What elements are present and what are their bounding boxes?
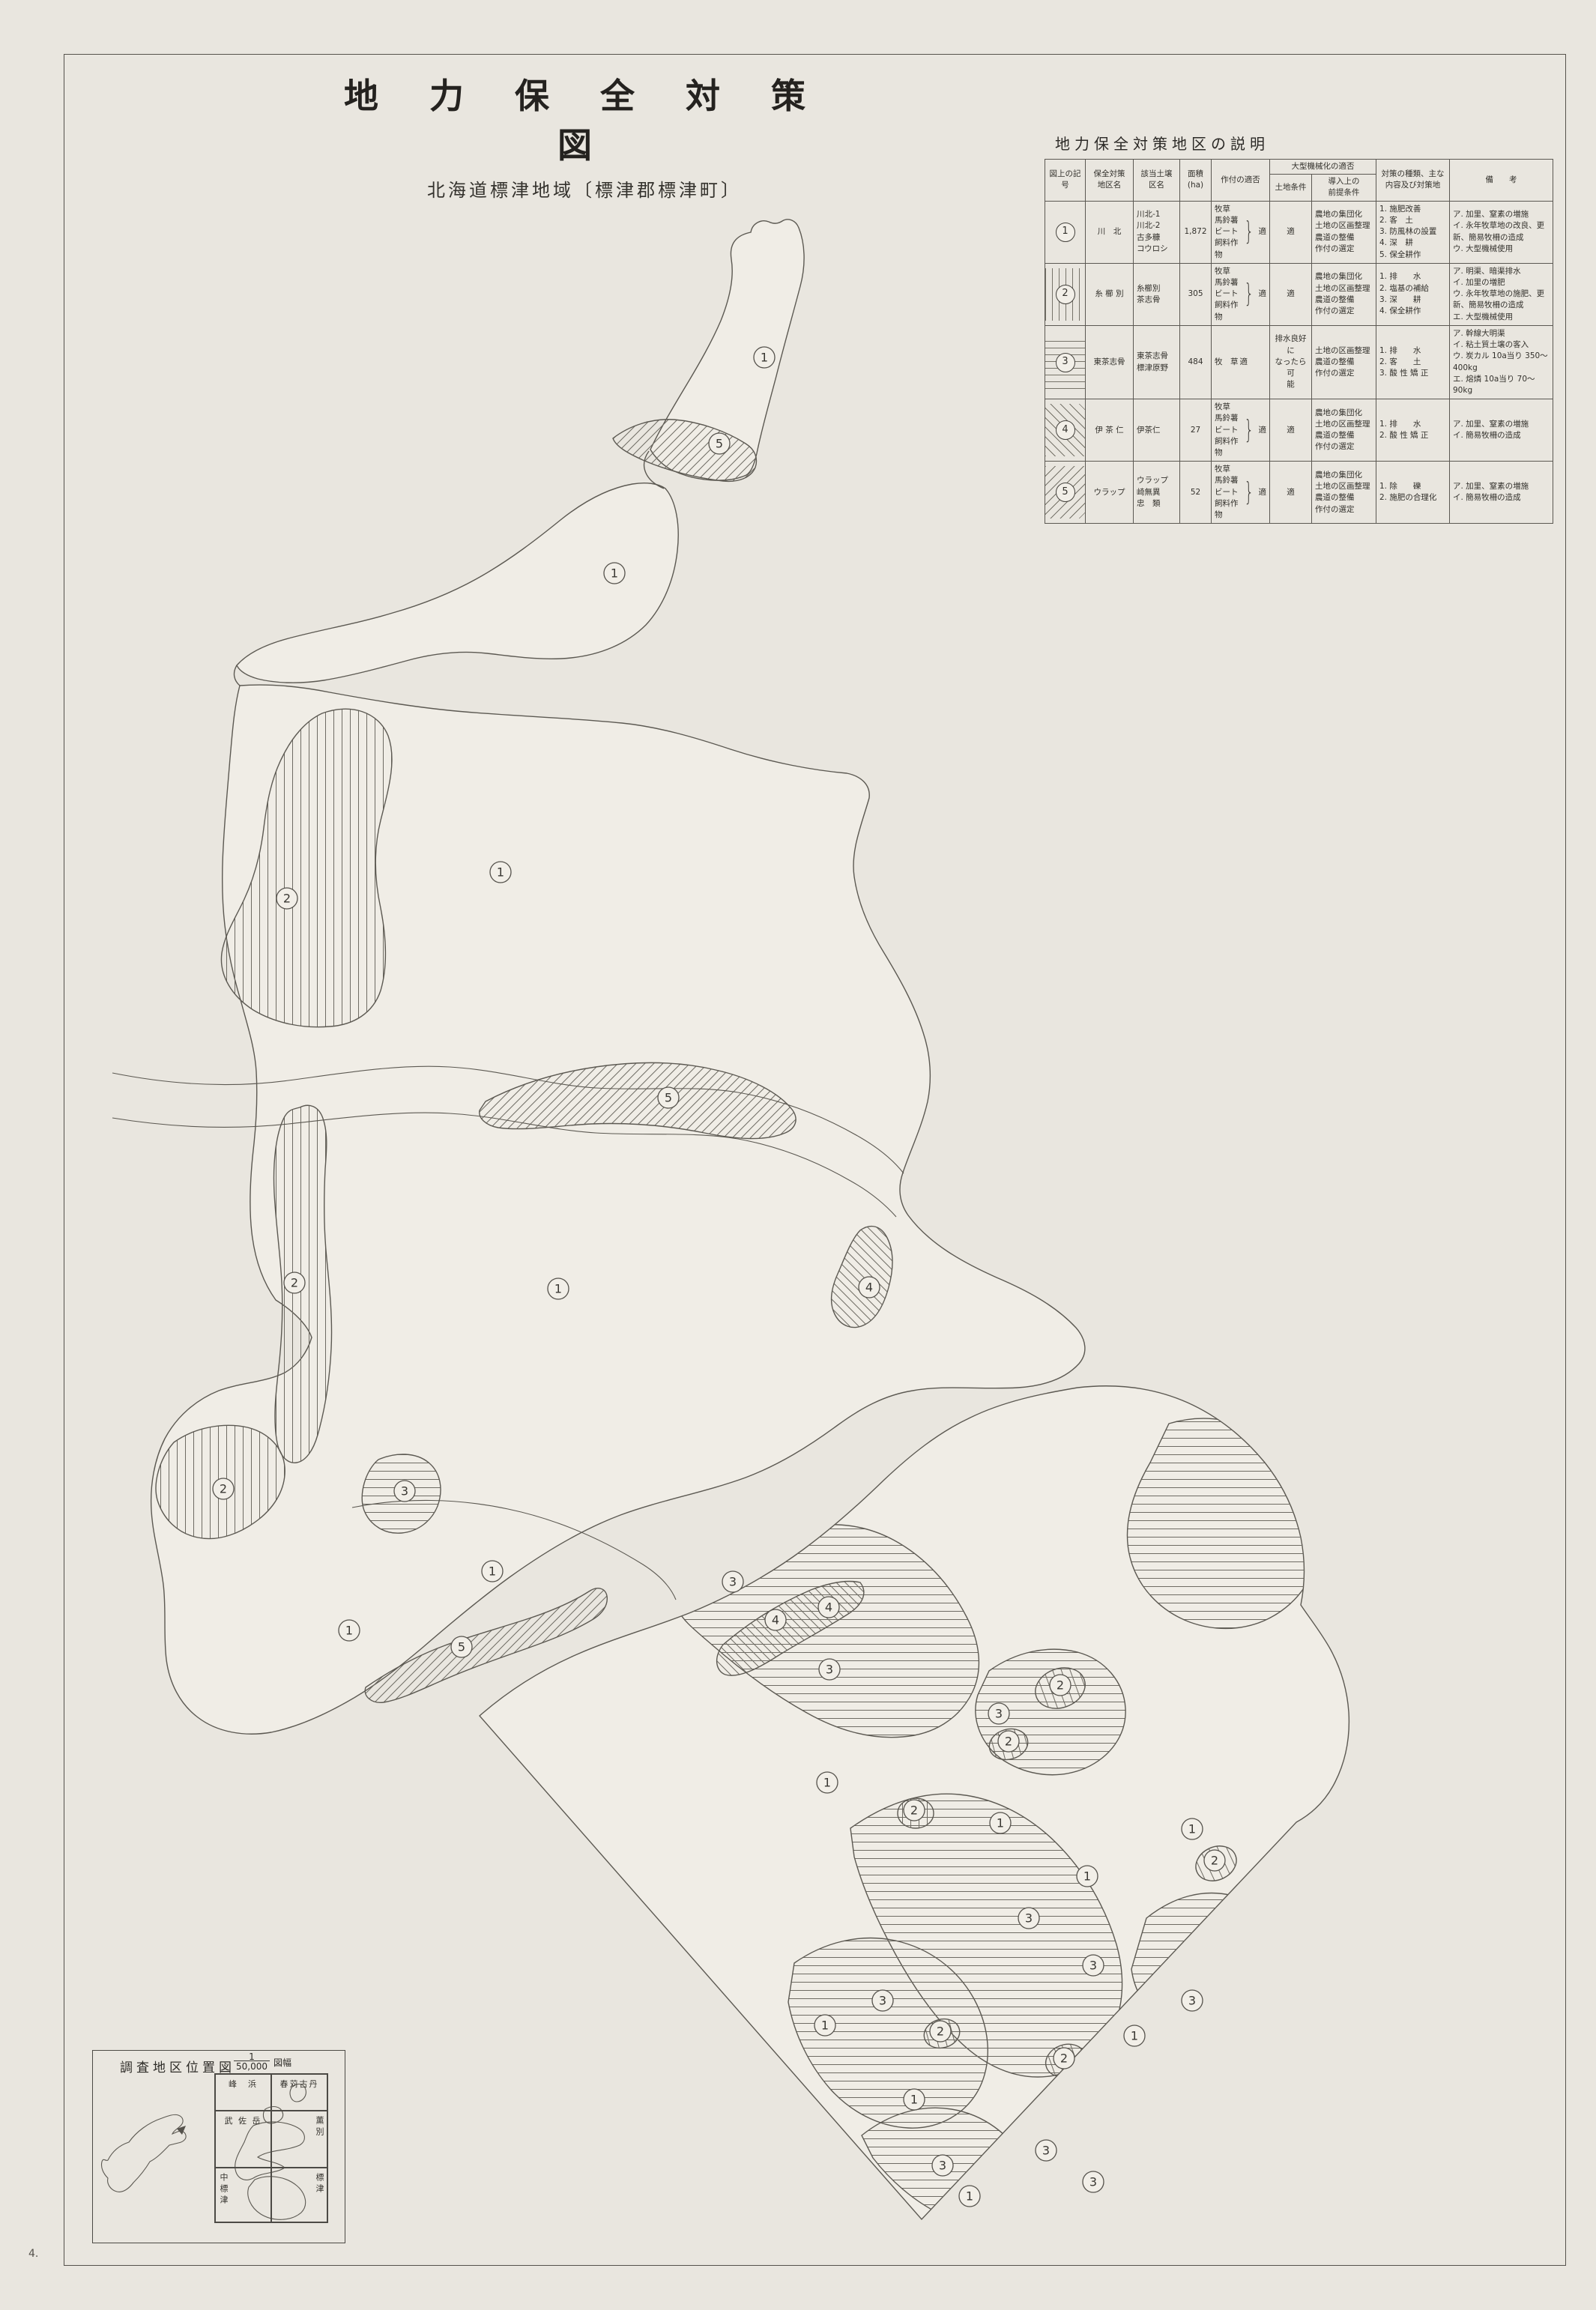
map-district-label-3: 3 [1036,2140,1057,2161]
col-header-symbol: 図上の記号 [1045,160,1086,202]
svg-text:3: 3 [879,1994,886,2008]
svg-text:2: 2 [910,1803,918,1818]
legend-table: 図上の記号 保全対策 地区名 該当土壌 区名 面積 (ha) 作付の適否 大型機… [1045,159,1553,524]
svg-text:1: 1 [997,1816,1004,1830]
svg-text:5: 5 [716,437,723,451]
map-district-label-2: 2 [276,888,297,909]
map-sheet: 1512152142311534432321211213333121213331… [0,0,1596,2310]
sheet-cell-shibetsu: 標津 [271,2168,327,2222]
svg-text:3: 3 [826,1663,833,1677]
svg-text:3: 3 [995,1707,1003,1721]
map-district-label-2: 2 [998,1731,1019,1752]
col-header-district: 保全対策 地区名 [1086,160,1134,202]
svg-text:3: 3 [939,2159,946,2173]
map-district-label-1: 1 [1124,2025,1145,2046]
col-header-area: 面積 (ha) [1180,160,1212,202]
svg-text:1: 1 [821,2019,829,2033]
col-header-cropping: 作付の適否 [1212,160,1270,202]
map-district-label-1: 1 [959,2186,980,2207]
map-district-label-1: 1 [754,347,775,368]
map-district-label-1: 1 [814,2015,835,2036]
map-district-label-3: 3 [1018,1908,1039,1929]
map-district-label-3: 3 [394,1481,415,1502]
map-district-label-1: 1 [548,1278,569,1299]
svg-text:1: 1 [497,865,504,880]
sheet-cell-kunbetsu: 薫別 [271,2111,327,2168]
svg-text:1: 1 [611,566,618,581]
svg-text:1: 1 [910,2093,918,2107]
svg-text:5: 5 [458,1640,465,1654]
legend-row-kawakita: 1 川 北 川北-1 川北-2 古多糠 コウロシ 1,872 牧草 馬鈴薯 ビー… [1045,201,1553,263]
legend-symbol-vertical-lines: 2 [1045,268,1085,321]
map-district-label-1: 1 [990,1812,1011,1833]
location-inset: 調査地区位置図 1 50,000 図幅 峰 浜 春苅古丹 武 佐 岳 [92,2050,345,2243]
map-district-label-2: 2 [930,2021,951,2042]
map-district-label-3: 3 [1083,1955,1104,1976]
hokkaido-outline [101,2114,186,2192]
map-district-label-4: 4 [859,1277,880,1298]
map-district-label-1: 1 [904,2089,925,2110]
map-district-label-1: 1 [482,1561,503,1582]
map-district-label-1: 1 [1077,1866,1098,1887]
map-sheet-index-grid: 峰 浜 春苅古丹 武 佐 岳 薫別 中標津 標津 [214,2073,328,2223]
legend-symbol-plain: 1 [1045,206,1085,258]
title-block: 地 力 保 全 対 策 図 北海道標津地域〔標津郡標津町〕 [322,69,847,202]
map-district-label-2: 2 [284,1272,305,1293]
legend-row-ichani: 4 伊 茶 仁 伊茶仁 27 牧草 馬鈴薯 ビート 飼料作物}適 適 農地の集団… [1045,399,1553,462]
svg-text:2: 2 [937,2025,944,2039]
map-district-label-1: 1 [490,862,511,883]
svg-text:1: 1 [966,2189,973,2204]
sheet-cell-musadake: 武 佐 岳 [215,2111,271,2168]
svg-text:3: 3 [1188,1994,1196,2008]
svg-text:2: 2 [220,1482,227,1496]
svg-text:1: 1 [761,351,768,365]
corner-mark: 4. [28,2248,38,2260]
legend-symbol-horizontal-lines: 3 [1045,336,1085,389]
svg-text:4: 4 [825,1600,832,1615]
svg-text:3: 3 [1089,1959,1097,1973]
legend-block: 地力保全対策地区の説明 図上の記号 保全対策 地区名 該当土壌 区名 面積 (h… [1045,132,1554,524]
legend-row-urappu: 5 ウラップ ウラップ 崎無異 忠 類 52 牧草 馬鈴薯 ビート 飼料作物}適… [1045,462,1553,524]
page-title: 地 力 保 全 対 策 図 [322,69,847,168]
map-district-label-3: 3 [988,1703,1009,1724]
svg-text:3: 3 [729,1575,737,1589]
svg-text:5: 5 [665,1091,672,1105]
map-district-label-3: 3 [819,1659,840,1680]
map-district-label-2: 2 [904,1800,925,1821]
map-district-label-4: 4 [818,1597,839,1618]
map-district-label-1: 1 [817,1772,838,1793]
sheet-cell-harukarikotan: 春苅古丹 [271,2074,327,2111]
map-district-label-3: 3 [1083,2171,1104,2192]
sheet-cell-minehama: 峰 浜 [215,2074,271,2111]
legend-row-itokushibetsu: 2 糸 櫛 別 糸櫛別 茶志骨 305 牧草 馬鈴薯 ビート 飼料作物}適 適 … [1045,263,1553,325]
legend-title: 地力保全対策地区の説明 [1055,132,1554,154]
map-district-label-3: 3 [932,2155,953,2176]
svg-text:1: 1 [345,1624,353,1638]
legend-row-higashichashikotsu: 3 東茶志骨 東茶志骨 標津原野 484 牧 草適 排水良好に なったら可 能 … [1045,325,1553,399]
svg-text:2: 2 [283,892,291,906]
svg-text:1: 1 [554,1282,562,1296]
svg-text:3: 3 [1042,2144,1050,2158]
col-header-prerequisite: 導入上の 前提条件 [1312,175,1376,201]
col-header-remarks: 備 考 [1450,160,1553,202]
svg-text:3: 3 [401,1484,408,1499]
col-header-land-condition: 土地条件 [1270,175,1312,201]
svg-text:1: 1 [1083,1869,1091,1884]
map-district-label-2: 2 [1050,1675,1071,1696]
map-district-label-3: 3 [872,1990,893,2011]
col-header-measures: 対策の種類、主な 内容及び対策地 [1376,160,1450,202]
svg-text:2: 2 [1057,1678,1064,1693]
map-district-label-1: 1 [604,563,625,584]
map-district-label-5: 5 [709,433,730,454]
map-district-label-3: 3 [722,1571,743,1592]
svg-text:4: 4 [865,1281,873,1295]
svg-text:2: 2 [1211,1854,1218,1868]
col-header-mechanization: 大型機械化の適否 [1270,160,1376,175]
map-district-label-2: 2 [1204,1850,1225,1871]
svg-text:1: 1 [823,1776,831,1790]
page-subtitle: 北海道標津地域〔標津郡標津町〕 [322,175,847,202]
legend-symbol-diagonal-lines-reverse: 5 [1045,466,1085,518]
map-district-label-2: 2 [1054,2048,1074,2069]
map-district-label-1: 1 [1182,1818,1203,1839]
svg-text:3: 3 [1025,1911,1033,1926]
map-district-label-5: 5 [451,1636,472,1657]
svg-text:3: 3 [1089,2175,1097,2189]
map-district-label-5: 5 [658,1087,679,1108]
svg-text:2: 2 [1005,1735,1012,1749]
map-district-label-3: 3 [1182,1990,1203,2011]
map-district-label-1: 1 [339,1620,360,1641]
sheet-cell-nakashibetsu: 中標津 [215,2168,271,2222]
legend-symbol-diagonal-lines: 4 [1045,404,1085,456]
col-header-soil: 該当土壌 区名 [1134,160,1180,202]
svg-text:2: 2 [1060,2052,1068,2066]
svg-text:1: 1 [1131,2029,1138,2043]
map-district-label-4: 4 [765,1609,786,1630]
map-district-label-2: 2 [213,1478,234,1499]
svg-text:4: 4 [772,1613,779,1627]
svg-text:2: 2 [291,1276,298,1290]
svg-text:1: 1 [489,1564,496,1579]
svg-text:1: 1 [1188,1822,1196,1836]
